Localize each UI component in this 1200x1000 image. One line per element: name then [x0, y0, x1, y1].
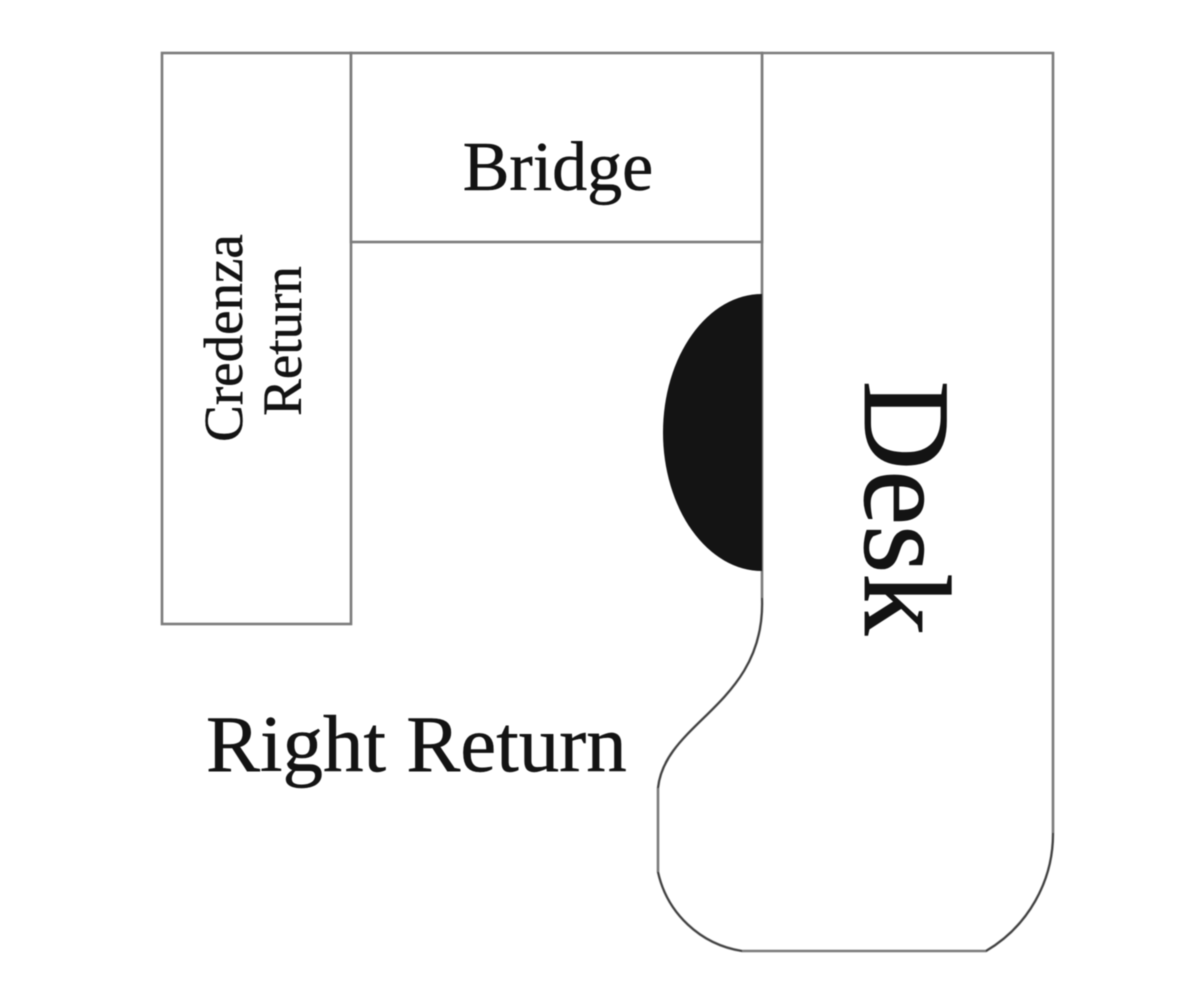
svg-text:Bridge: Bridge — [463, 129, 654, 206]
svg-text:Desk: Desk — [838, 381, 975, 636]
svg-text:Credenza: Credenza — [193, 234, 254, 442]
svg-text:Return: Return — [252, 266, 313, 416]
svg-text:Right Return: Right Return — [206, 699, 627, 789]
